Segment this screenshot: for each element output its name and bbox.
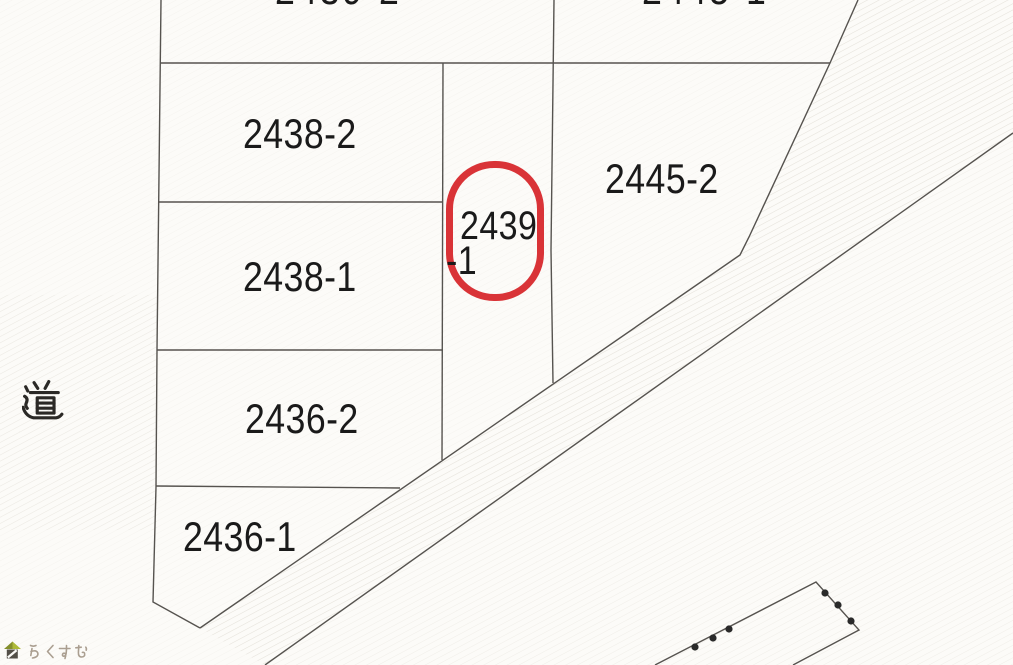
survey-dot (821, 589, 828, 596)
survey-dot (834, 601, 841, 608)
survey-dot (709, 634, 716, 641)
boundary-strip-left (442, 63, 443, 460)
parcel-label-2438-1: 2438-1 (243, 256, 357, 298)
parcel-label-2439-1-line2: -1 (446, 241, 477, 281)
parcel-label-2439-2-clipped: 2439-2 (275, 0, 401, 11)
parcel-label-2445-2: 2445-2 (605, 158, 719, 200)
road-kanji-glyph (22, 380, 64, 422)
parcel-label-2436-2: 2436-2 (245, 398, 359, 440)
watermark: らくすむ (4, 641, 104, 663)
watermark-glyph-strokes (31, 646, 87, 659)
road-label: 道 (22, 380, 64, 422)
cadastral-map: 2439-2 2445-1 2438-2 2438-1 2436-2 2436-… (0, 0, 1013, 665)
survey-dot (725, 625, 732, 632)
map-linework (0, 0, 1013, 665)
parcel-label-2445-1-clipped: 2445-1 (642, 0, 768, 11)
survey-dot (691, 643, 698, 650)
parcel-label-2438-2: 2438-2 (243, 113, 357, 155)
watermark-logo (4, 641, 104, 661)
survey-dot (847, 617, 854, 624)
house-icon (4, 642, 21, 659)
parcel-label-2436-1: 2436-1 (183, 516, 297, 558)
